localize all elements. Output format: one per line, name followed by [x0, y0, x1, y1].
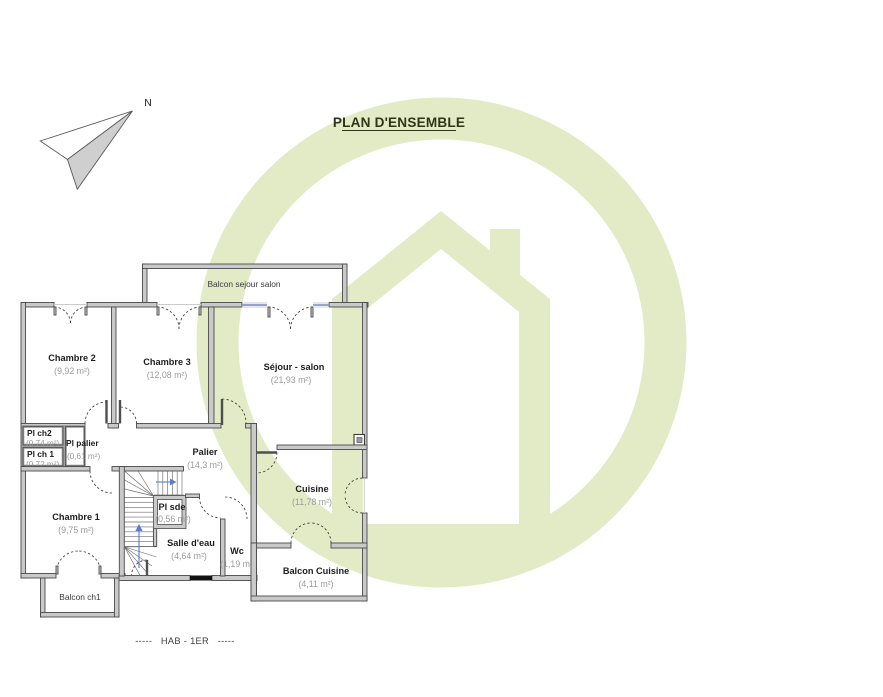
svg-text:(0,61 m²): (0,61 m²)	[67, 452, 100, 461]
svg-text:N: N	[144, 97, 152, 109]
svg-text:Balcon ch1: Balcon ch1	[59, 592, 101, 602]
svg-text:Chambre 1: Chambre 1	[52, 512, 100, 522]
svg-text:(4,64 m²): (4,64 m²)	[171, 551, 207, 561]
svg-text:(0,56 m²): (0,56 m²)	[155, 514, 191, 524]
svg-text:(21,93 m²): (21,93 m²)	[271, 375, 312, 385]
svg-text:Séjour - salon: Séjour - salon	[264, 362, 325, 372]
svg-text:Pl sde: Pl sde	[158, 502, 185, 512]
svg-text:Cuisine: Cuisine	[295, 484, 328, 494]
svg-text:(9,75 m²): (9,75 m²)	[58, 525, 94, 535]
svg-text:(4,11 m²): (4,11 m²)	[298, 579, 333, 589]
svg-text:(1,19 m²): (1,19 m²)	[220, 559, 256, 569]
svg-text:----- HAB - 1ER -----: ----- HAB - 1ER -----	[135, 636, 234, 646]
svg-text:Balcon Cuisine: Balcon Cuisine	[283, 566, 349, 576]
svg-text:Wc: Wc	[230, 546, 244, 556]
svg-text:Chambre 2: Chambre 2	[48, 353, 96, 363]
svg-text:Pl ch 1: Pl ch 1	[27, 449, 54, 459]
svg-text:(14,3 m²): (14,3 m²)	[187, 460, 223, 470]
svg-text:PLAN D'ENSEMBLE: PLAN D'ENSEMBLE	[333, 115, 465, 130]
svg-text:Pl palier: Pl palier	[66, 438, 99, 448]
svg-text:Pl ch2: Pl ch2	[27, 428, 52, 438]
svg-text:Balcon sejour salon: Balcon sejour salon	[207, 279, 280, 289]
svg-text:Salle d'eau: Salle d'eau	[167, 538, 215, 548]
svg-text:(11,78 m²): (11,78 m²)	[292, 497, 332, 507]
svg-text:(9,92 m²): (9,92 m²)	[54, 366, 90, 376]
svg-text:Chambre 3: Chambre 3	[143, 357, 191, 367]
svg-text:Palier: Palier	[192, 447, 217, 457]
svg-text:(12,08 m²): (12,08 m²)	[147, 370, 188, 380]
